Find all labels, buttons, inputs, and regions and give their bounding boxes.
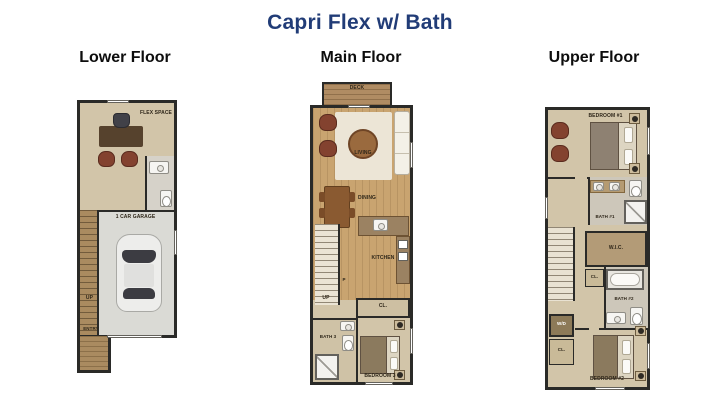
lower-floor-plan: FLEX SPACE 1 CAR GARAGE UP ENTRY <box>77 100 177 373</box>
upper-stairs <box>548 227 575 301</box>
main-stairs <box>315 224 340 305</box>
deck-label: DECK <box>322 86 392 92</box>
sofa <box>394 111 410 175</box>
sink-icon <box>606 312 626 324</box>
shower-icon <box>315 354 339 380</box>
sink-icon <box>609 182 620 191</box>
dining-chair <box>319 192 325 202</box>
up-label: UP <box>80 296 99 302</box>
hall-closet-label: CL. <box>585 275 604 280</box>
bath1-label: BATH #1 <box>588 215 622 220</box>
bed-blanket <box>361 337 387 373</box>
bedroom3-label: BEDROOM 3 <box>354 374 406 380</box>
bedroom1-label: BEDROOM #1 <box>578 114 633 120</box>
car-roof <box>124 264 154 287</box>
armchair <box>551 145 569 162</box>
entry-vestibule <box>77 336 111 373</box>
dining-table <box>324 186 350 228</box>
bedroom2-label: BEDROOM #2 <box>581 377 633 383</box>
entry-label: ENTRY <box>78 327 104 332</box>
wic-label: W.I.C. <box>585 246 647 252</box>
window <box>595 387 625 390</box>
dining-chair <box>349 208 355 218</box>
sink-icon <box>593 182 604 191</box>
closet-label: CL. <box>356 304 410 310</box>
nightstand-lamp <box>635 326 646 336</box>
window <box>647 127 650 155</box>
bed <box>593 335 634 379</box>
bed-blanket <box>591 123 619 169</box>
bathtub-icon <box>606 269 644 290</box>
garage-door <box>107 335 162 338</box>
bed-pillow <box>622 340 631 355</box>
page-title: Capri Flex w/ Bath <box>0 11 720 35</box>
pantry-label: P <box>340 278 348 283</box>
appliance <box>398 240 408 249</box>
bath2-label: BATH #2 <box>606 297 642 302</box>
upper-floor-plan: BEDROOM #1 BATH #1 W.I.C. CL. BATH #2 W/… <box>545 107 650 390</box>
window <box>174 230 177 255</box>
deck-door <box>348 105 370 108</box>
window <box>410 142 413 168</box>
floorplan-sheet: { "title": "Capri Flex w/ Bath", "colors… <box>0 0 720 405</box>
window <box>365 382 393 385</box>
main-floor-plan: DECK LIVING DINING KITCHEN P UP CL. BATH… <box>310 82 413 385</box>
wd-label: W/D <box>549 322 574 327</box>
flex-space-label: FLEX SPACE <box>119 111 172 117</box>
sink-icon <box>340 321 355 331</box>
window <box>545 197 548 219</box>
window <box>647 343 650 369</box>
bed-pillow <box>390 357 398 370</box>
upper-floor-heading: Upper Floor <box>529 49 659 67</box>
living-label: LIVING <box>338 151 388 157</box>
bed-pillow <box>624 127 633 143</box>
car-rear-window <box>123 288 155 299</box>
nightstand-lamp <box>635 371 646 381</box>
lower-stairs <box>80 210 99 335</box>
car <box>116 234 162 312</box>
window <box>107 100 129 103</box>
lower-floor-heading: Lower Floor <box>60 49 190 67</box>
bed <box>360 336 400 374</box>
shower-icon <box>624 200 647 224</box>
armchair <box>319 140 337 157</box>
garage-label: 1 CAR GARAGE <box>97 215 174 221</box>
armchair <box>319 114 337 131</box>
up-label: UP <box>315 296 337 302</box>
window <box>410 328 413 354</box>
nightstand-lamp <box>629 163 640 174</box>
door-opening <box>575 177 587 179</box>
guest-chair <box>98 151 115 167</box>
left-closet-label: CL. <box>549 348 574 353</box>
desk <box>99 126 143 147</box>
car-windshield <box>122 250 156 263</box>
nightstand-lamp <box>394 320 405 330</box>
bed-blanket <box>594 336 618 378</box>
toilet-icon <box>629 180 642 197</box>
guest-chair <box>121 151 138 167</box>
dining-label: DINING <box>346 196 388 202</box>
dining-chair <box>319 208 325 218</box>
sink-icon <box>149 161 169 174</box>
toilet-icon <box>630 307 643 325</box>
toilet-icon <box>342 335 354 351</box>
toilet-icon <box>160 190 172 207</box>
bed-pillow <box>390 340 398 353</box>
sink-icon <box>373 219 388 231</box>
kitchen-label: KITCHEN <box>360 256 406 262</box>
bed-pillow <box>622 359 631 374</box>
armchair <box>551 122 569 139</box>
bath3-label: BATH 3 <box>314 335 342 340</box>
main-floor-heading: Main Floor <box>296 49 426 67</box>
door-opening <box>589 328 599 330</box>
